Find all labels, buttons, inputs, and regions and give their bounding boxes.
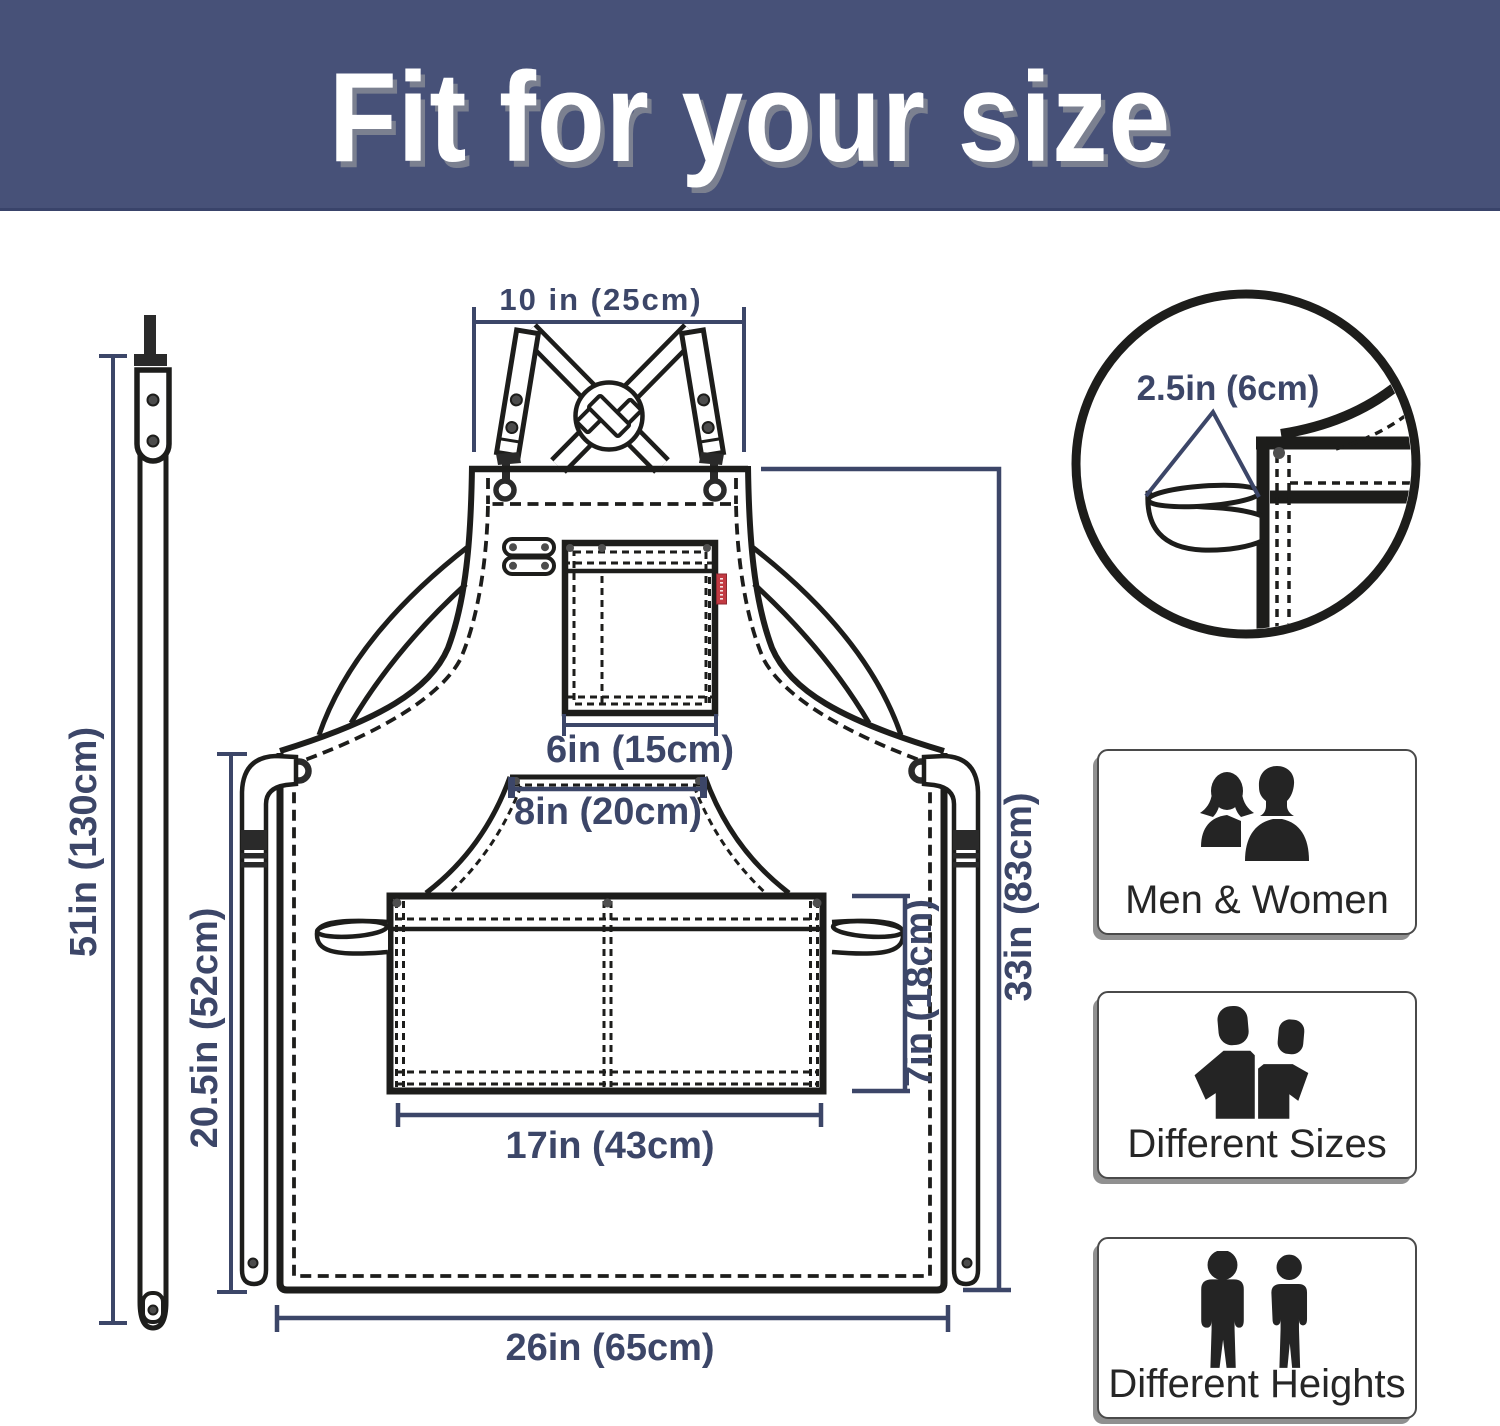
- svg-text:8in (20cm): 8in (20cm): [514, 791, 702, 833]
- svg-text:2.5in (6cm): 2.5in (6cm): [1137, 369, 1320, 408]
- svg-text:51in (130cm): 51in (130cm): [63, 727, 105, 957]
- svg-text:20.5in (52cm): 20.5in (52cm): [184, 908, 226, 1149]
- svg-text:10 in (25cm): 10 in (25cm): [499, 282, 702, 317]
- svg-text:26in (65cm): 26in (65cm): [505, 1327, 714, 1369]
- svg-text:33in (83cm): 33in (83cm): [998, 792, 1040, 1001]
- svg-text:17in (43cm): 17in (43cm): [505, 1125, 714, 1167]
- svg-text:7in (18cm): 7in (18cm): [898, 899, 940, 1087]
- svg-text:6in (15cm): 6in (15cm): [546, 729, 734, 771]
